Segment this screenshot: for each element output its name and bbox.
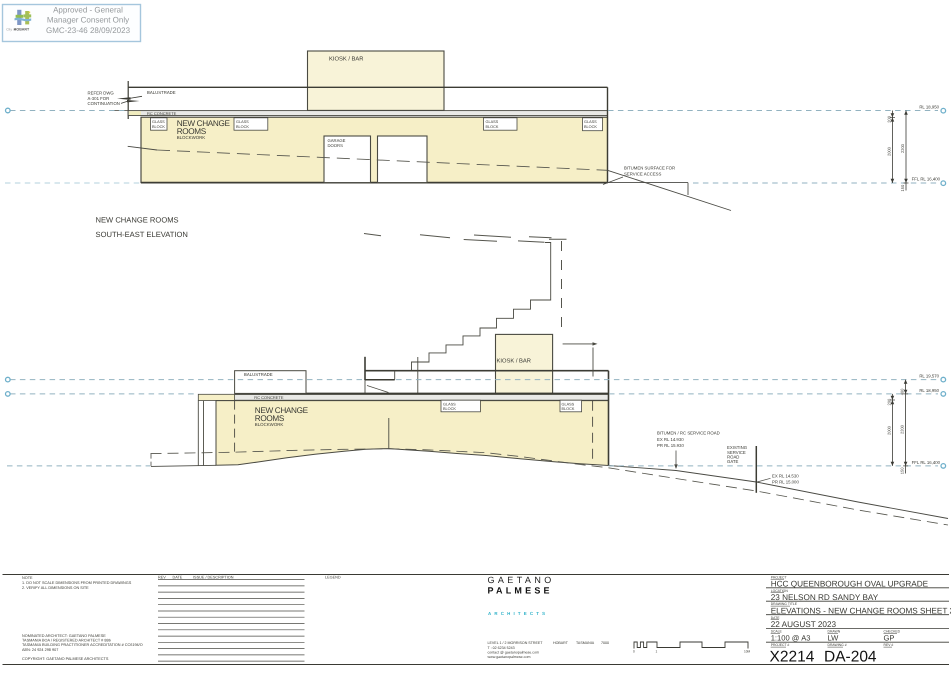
- svg-text:Manager Consent Only: Manager Consent Only: [47, 16, 129, 25]
- svg-text:PR RL 15.000: PR RL 15.000: [772, 480, 799, 485]
- svg-text:NEW CHANGE ROOMS: NEW CHANGE ROOMS: [96, 216, 179, 225]
- svg-text:DOORS: DOORS: [328, 143, 344, 148]
- svg-text:GMC-23-46 28/09/2023: GMC-23-46 28/09/2023: [46, 26, 131, 35]
- svg-text:GP: GP: [884, 634, 895, 643]
- svg-text:TASMANIA BUILDING PRACTITIONER: TASMANIA BUILDING PRACTITIONER ACCREDITA…: [22, 643, 143, 647]
- svg-text:PALMESE: PALMESE: [488, 586, 553, 596]
- svg-text:X2214: X2214: [770, 649, 815, 666]
- svg-text:GLASS: GLASS: [486, 120, 499, 124]
- svg-text:2200: 2200: [900, 143, 905, 153]
- svg-text:LEVEL 1 / 2 MORRISON STREET: LEVEL 1 / 2 MORRISON STREET: [488, 641, 544, 645]
- svg-text:GLASS: GLASS: [584, 120, 597, 124]
- svg-text:2200: 2200: [900, 424, 905, 434]
- svg-text:RC CONCRETE: RC CONCRETE: [147, 111, 177, 116]
- svg-text:COPYRIGHT: GAETANO PALMESE ARC: COPYRIGHT: GAETANO PALMESE ARCHITECTS: [22, 657, 109, 661]
- svg-text:DATE: DATE: [173, 576, 183, 580]
- svg-text:SOUTH-EAST ELEVATION: SOUTH-EAST ELEVATION: [96, 230, 188, 239]
- svg-text:FFL RL 16,400: FFL RL 16,400: [912, 460, 941, 465]
- svg-text:BLOCK: BLOCK: [584, 125, 597, 129]
- svg-text:2000: 2000: [886, 425, 891, 435]
- svg-text:BALUSTRADE: BALUSTRADE: [147, 90, 176, 95]
- svg-text:7000: 7000: [601, 641, 609, 645]
- svg-text:RC CONCRETE: RC CONCRETE: [254, 395, 284, 400]
- svg-text:www.gaetanopalmese.com: www.gaetanopalmese.com: [488, 655, 531, 659]
- svg-text:contact @ gaetanopalmese.com: contact @ gaetanopalmese.com: [488, 650, 540, 654]
- svg-text:SERVICE ACCESS: SERVICE ACCESS: [624, 171, 662, 176]
- svg-text:LEGEND: LEGEND: [325, 576, 341, 580]
- svg-text:HCC QUEENBOROUGH OVAL UPGRADE: HCC QUEENBOROUGH OVAL UPGRADE: [771, 580, 929, 589]
- svg-text:200: 200: [886, 398, 891, 405]
- svg-text:ISSUE / DESCRIPTION: ISSUE / DESCRIPTION: [193, 576, 234, 580]
- svg-text:1:100 @ A3: 1:100 @ A3: [771, 634, 811, 643]
- svg-text:HOBART: HOBART: [14, 28, 30, 32]
- svg-text:DRAWING TITLE: DRAWING TITLE: [771, 602, 798, 606]
- svg-text:CONTINUATION: CONTINUATION: [88, 101, 120, 106]
- svg-text:TASMANIA BOA / REGISTERED ARCH: TASMANIA BOA / REGISTERED ARCHITECT # 88…: [22, 639, 111, 643]
- svg-text:Approved - General: Approved - General: [53, 6, 123, 15]
- svg-text:RL 18,950: RL 18,950: [919, 388, 939, 393]
- svg-text:0: 0: [633, 649, 635, 653]
- svg-text:BLOCKWORK: BLOCKWORK: [255, 422, 284, 427]
- svg-text:2. VERIFY ALL DIMENSIONS ON SI: 2. VERIFY ALL DIMENSIONS ON SITE: [22, 586, 89, 590]
- svg-text:NOMINATED ARCHITECT: GAETANO P: NOMINATED ARCHITECT: GAETANO PALMESE: [22, 634, 106, 638]
- svg-text:150: 150: [900, 467, 905, 474]
- svg-text:PROJECT #: PROJECT #: [771, 643, 790, 647]
- svg-text:BLOCK: BLOCK: [152, 125, 165, 129]
- svg-text:1. DO NOT SCALE DIMENSIONS FRO: 1. DO NOT SCALE DIMENSIONS FROM PRINTED …: [22, 581, 132, 585]
- svg-text:DRAWING #: DRAWING #: [828, 643, 847, 647]
- svg-text:ELEVATIONS - NEW CHANGE ROOMS: ELEVATIONS - NEW CHANGE ROOMS SHEET 2: [771, 607, 951, 616]
- svg-text:22 AUGUST 2023: 22 AUGUST 2023: [771, 620, 837, 629]
- svg-text:BLOCK: BLOCK: [486, 125, 499, 129]
- svg-text:BITUMEN / RC SERVICE ROAD: BITUMEN / RC SERVICE ROAD: [657, 431, 720, 436]
- svg-text:1: 1: [656, 649, 658, 653]
- svg-text:BLOCK: BLOCK: [562, 407, 575, 411]
- svg-text:REV: REV: [158, 576, 166, 580]
- svg-text:BALUSTRADE: BALUSTRADE: [244, 372, 273, 377]
- svg-text:DATE: DATE: [771, 616, 781, 620]
- svg-text:BLOCKWORK: BLOCKWORK: [177, 135, 206, 140]
- svg-text:10M: 10M: [744, 649, 751, 653]
- svg-text:GLASS: GLASS: [236, 120, 249, 124]
- svg-text:400: 400: [900, 388, 905, 395]
- svg-text:ABN: 24 924 298 907: ABN: 24 924 298 907: [22, 648, 58, 652]
- svg-text:LW: LW: [828, 634, 840, 643]
- svg-text:150: 150: [900, 184, 905, 191]
- svg-text:GLASS: GLASS: [562, 402, 575, 406]
- svg-text:RL 18,950: RL 18,950: [919, 104, 939, 109]
- svg-text:KIOSK / BAR: KIOSK / BAR: [497, 357, 531, 364]
- svg-text:GAETANO: GAETANO: [488, 575, 555, 585]
- svg-text:REV #: REV #: [884, 643, 894, 647]
- svg-text:GLASS: GLASS: [443, 402, 456, 406]
- svg-text:EX RL 14.930: EX RL 14.930: [657, 437, 684, 442]
- svg-text:BITUMEN SURFACE FOR: BITUMEN SURFACE FOR: [624, 165, 675, 170]
- svg-text:200: 200: [886, 115, 891, 122]
- svg-text:T : 02 6234 5243: T : 02 6234 5243: [488, 646, 515, 650]
- svg-text:TASMANIA: TASMANIA: [576, 641, 595, 645]
- svg-text:PR RL 15.930: PR RL 15.930: [657, 443, 684, 448]
- svg-text:23 NELSON RD SANDY BAY: 23 NELSON RD SANDY BAY: [771, 593, 879, 602]
- svg-text:GATE: GATE: [727, 459, 739, 464]
- svg-text:DA-204: DA-204: [824, 649, 877, 666]
- svg-text:FFL RL 16,400: FFL RL 16,400: [912, 177, 941, 182]
- svg-text:ARCHITECTS: ARCHITECTS: [488, 611, 548, 616]
- svg-text:BLOCK: BLOCK: [236, 125, 249, 129]
- svg-text:2000: 2000: [886, 146, 891, 156]
- svg-text:KIOSK / BAR: KIOSK / BAR: [329, 56, 363, 63]
- svg-text:HOBART: HOBART: [553, 641, 569, 645]
- svg-text:RL 19,570: RL 19,570: [919, 374, 939, 379]
- svg-text:EX RL 14.530: EX RL 14.530: [772, 473, 799, 478]
- svg-text:GLASS: GLASS: [152, 120, 165, 124]
- svg-text:NOTE: NOTE: [22, 576, 33, 580]
- svg-text:BLOCK: BLOCK: [443, 407, 456, 411]
